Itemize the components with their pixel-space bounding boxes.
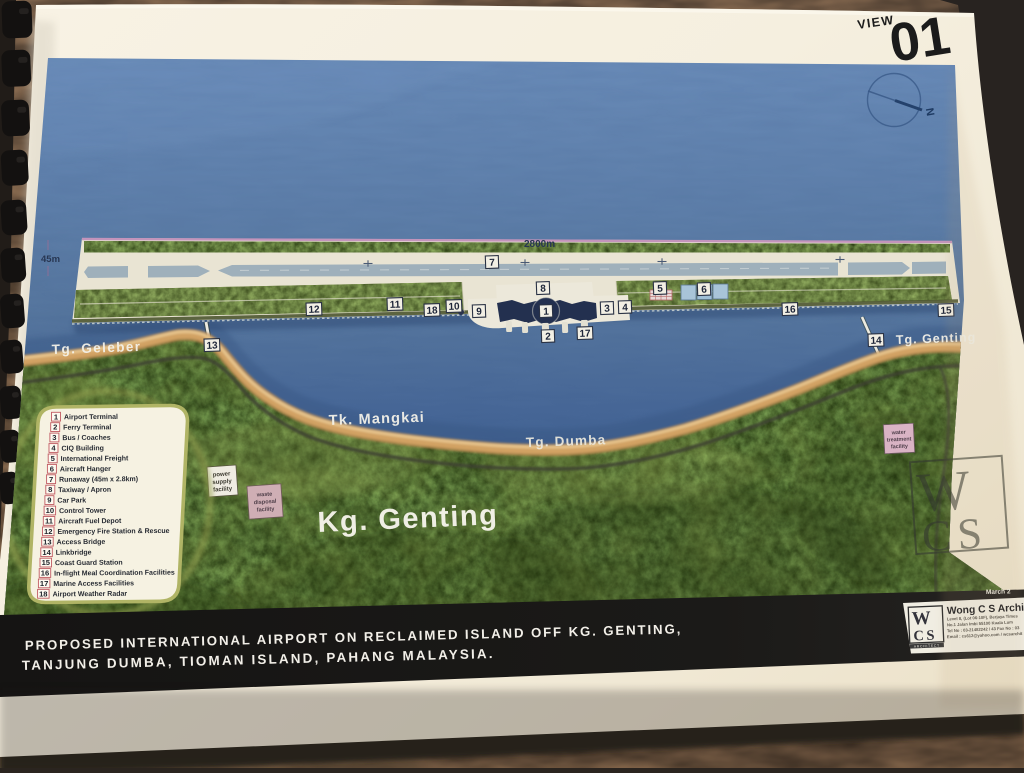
svg-text:W: W	[911, 608, 931, 630]
svg-text:16: 16	[784, 304, 796, 315]
svg-text:7: 7	[489, 258, 495, 269]
svg-text:16: 16	[41, 569, 49, 578]
svg-text:Coast Guard Station: Coast Guard Station	[55, 560, 123, 568]
svg-text:18: 18	[39, 589, 47, 598]
svg-text:Emergency Fire Station & Rescu: Emergency Fire Station & Rescue	[57, 528, 169, 536]
svg-text:5: 5	[657, 284, 663, 295]
svg-text:facility: facility	[891, 444, 908, 451]
svg-text:Tg. Dumba: Tg. Dumba	[526, 432, 607, 450]
svg-text:01: 01	[885, 5, 954, 74]
svg-text:Car Park: Car Park	[57, 497, 86, 504]
svg-text:Bus / Coaches: Bus / Coaches	[62, 435, 110, 442]
svg-text:4: 4	[622, 303, 628, 314]
svg-text:Aircraft Hanger: Aircraft Hanger	[60, 466, 111, 473]
svg-text:Access Bridge: Access Bridge	[57, 539, 106, 546]
svg-text:12: 12	[308, 304, 320, 315]
svg-text:Tg. Geleber: Tg. Geleber	[52, 339, 142, 357]
svg-text:15: 15	[42, 558, 51, 567]
svg-text:11: 11	[45, 517, 54, 526]
svg-text:2: 2	[53, 423, 57, 432]
svg-text:CIQ Building: CIQ Building	[61, 445, 103, 452]
svg-text:6: 6	[50, 464, 54, 473]
svg-text:8: 8	[540, 284, 546, 295]
svg-text:17: 17	[40, 579, 48, 588]
svg-text:3: 3	[52, 433, 56, 442]
svg-text:7: 7	[49, 475, 53, 484]
svg-text:Control Tower: Control Tower	[59, 508, 106, 515]
svg-text:9: 9	[476, 307, 482, 318]
svg-text:water: water	[891, 430, 907, 437]
svg-text:Runaway (45m x 2.8km): Runaway (45m x 2.8km)	[59, 476, 138, 484]
svg-text:14: 14	[42, 548, 51, 557]
svg-text:1: 1	[543, 307, 549, 318]
svg-text:CS: CS	[913, 628, 937, 645]
svg-text:Ferry Terminal: Ferry Terminal	[63, 424, 111, 431]
svg-text:14: 14	[870, 335, 882, 346]
svg-text:6: 6	[701, 285, 707, 296]
svg-text:11: 11	[390, 300, 401, 311]
svg-text:13: 13	[206, 340, 218, 351]
svg-text:8: 8	[48, 485, 52, 494]
svg-text:10: 10	[46, 506, 54, 515]
svg-text:Airport Weather Radar: Airport Weather Radar	[53, 591, 128, 599]
svg-text:power: power	[213, 471, 232, 478]
svg-text:International Freight: International Freight	[61, 455, 129, 463]
svg-text:2: 2	[545, 332, 551, 343]
svg-text:Airport Terminal: Airport Terminal	[64, 414, 118, 421]
svg-text:3: 3	[604, 304, 610, 315]
svg-text:12: 12	[44, 527, 52, 536]
svg-text:45m: 45m	[41, 254, 60, 265]
svg-text:17: 17	[579, 328, 591, 339]
svg-text:Tk. Mangkai: Tk. Mangkai	[329, 410, 426, 429]
svg-text:In-flight Meal Coordination Fa: In-flight Meal Coordination Facilities	[54, 570, 175, 578]
svg-text:10: 10	[448, 301, 460, 312]
svg-text:9: 9	[47, 496, 51, 505]
svg-text:2800m: 2800m	[524, 239, 555, 250]
svg-text:18: 18	[426, 305, 438, 316]
svg-text:Taxiway / Apron: Taxiway / Apron	[58, 487, 111, 494]
svg-text:Marine Access Facilities: Marine Access Facilities	[53, 580, 134, 588]
svg-text:Aircraft Fuel Depot: Aircraft Fuel Depot	[58, 518, 122, 526]
svg-text:waste: waste	[256, 491, 273, 498]
svg-text:Linkbridge: Linkbridge	[56, 549, 92, 556]
svg-text:13: 13	[43, 537, 51, 546]
